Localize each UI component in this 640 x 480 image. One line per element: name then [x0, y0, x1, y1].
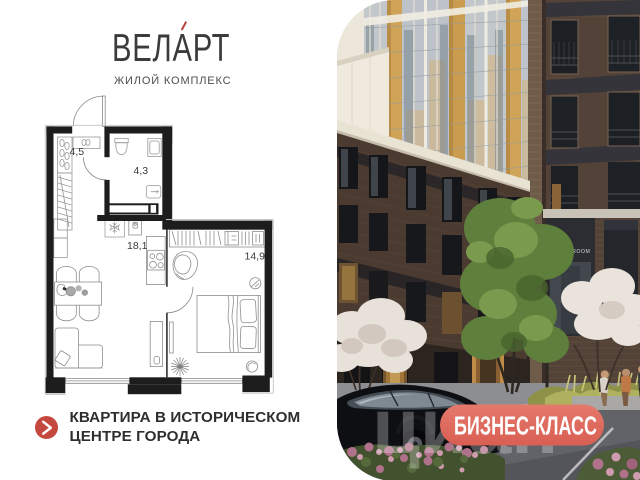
svg-text:БИЗНЕС-КЛАСС: БИЗНЕС-КЛАСС	[454, 413, 597, 441]
